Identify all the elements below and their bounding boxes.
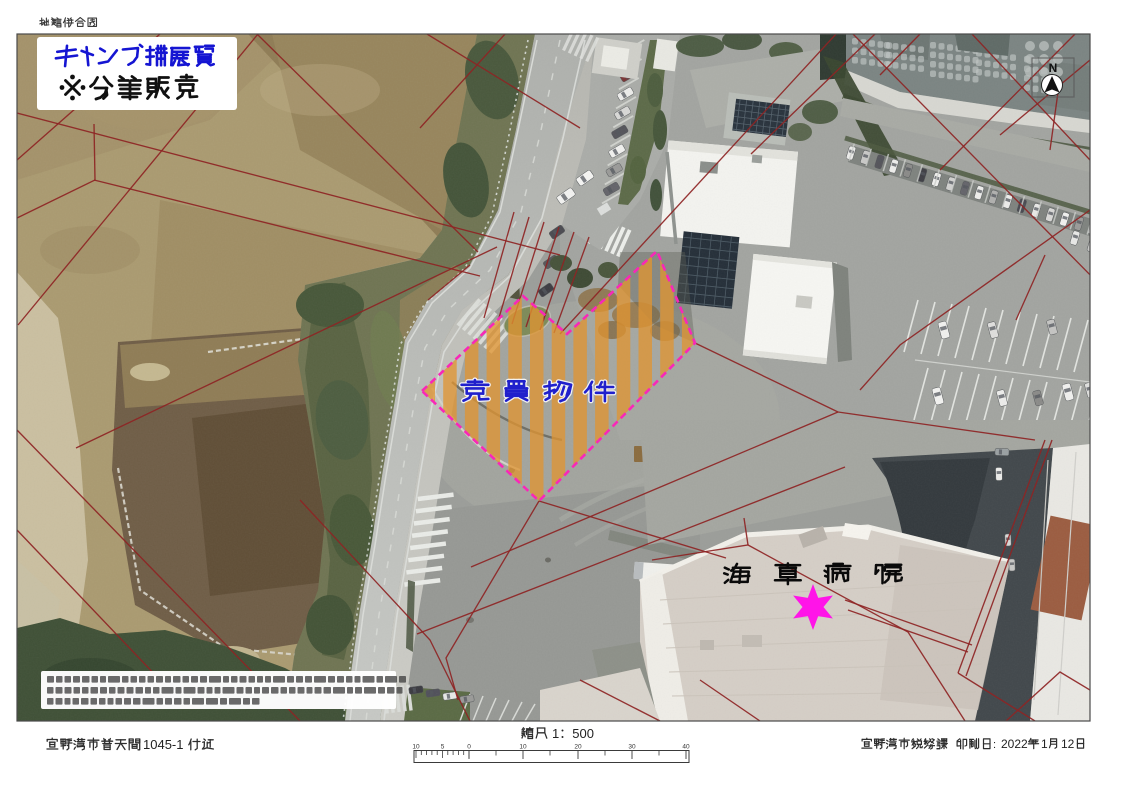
svg-text:5: 5 bbox=[441, 744, 445, 751]
svg-text:2022: 2022 bbox=[1001, 737, 1028, 751]
svg-text:0: 0 bbox=[467, 744, 471, 751]
svg-text:20: 20 bbox=[574, 744, 582, 751]
svg-text:N: N bbox=[1049, 61, 1058, 75]
svg-text:10: 10 bbox=[519, 744, 527, 751]
svg-text:1045-1: 1045-1 bbox=[143, 737, 183, 752]
svg-text:30: 30 bbox=[628, 744, 636, 751]
svg-text:1: 1 bbox=[1041, 737, 1048, 751]
svg-text:12: 12 bbox=[1061, 737, 1075, 751]
svg-text:1：500: 1：500 bbox=[552, 726, 594, 741]
svg-text::: : bbox=[993, 739, 996, 751]
svg-text:40: 40 bbox=[682, 744, 690, 751]
svg-text:10: 10 bbox=[412, 744, 420, 751]
